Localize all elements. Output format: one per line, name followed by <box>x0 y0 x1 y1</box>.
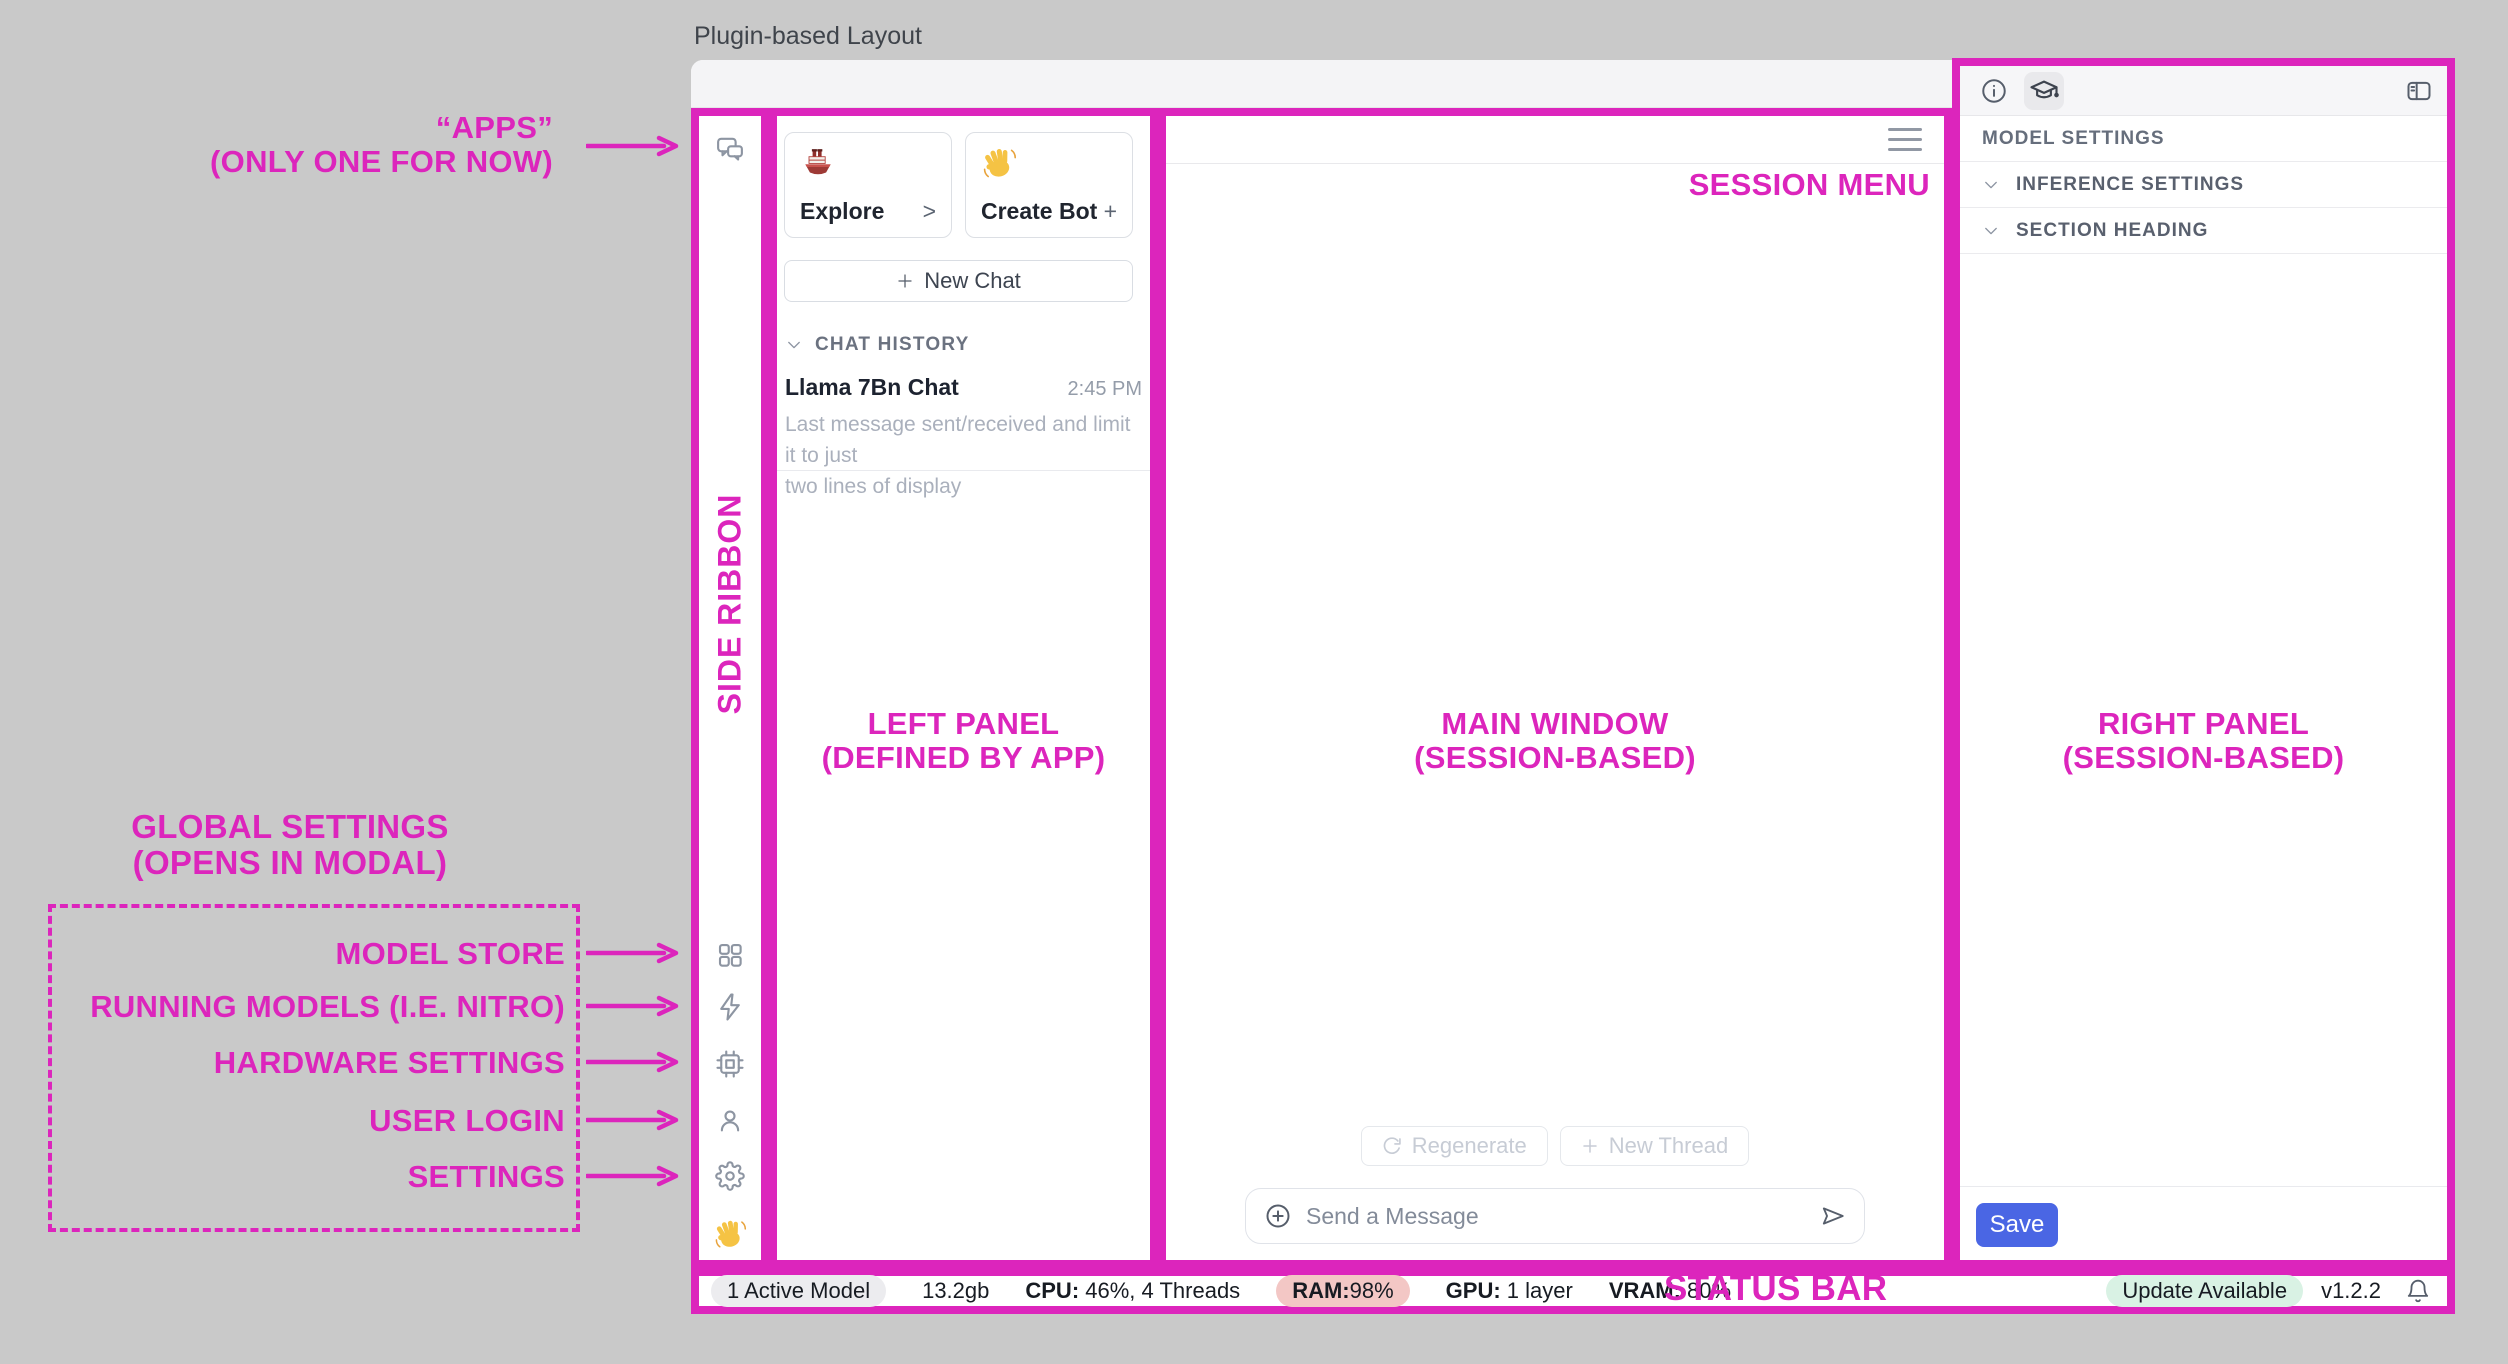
status-right-group: Update Available v1.2.2 <box>2106 1275 2431 1307</box>
session-menu-button[interactable] <box>1888 128 1922 151</box>
send-icon[interactable] <box>1820 1203 1846 1229</box>
right-panel: MODEL SETTINGS INFERENCE SETTINGS SECTIO… <box>1952 58 2455 1268</box>
app-cards: Explore > <box>784 132 1133 238</box>
inference-settings-row[interactable]: INFERENCE SETTINGS <box>1960 162 2447 208</box>
chat-item-preview-line1: Last message sent/received and limit it … <box>785 409 1142 471</box>
annotation-arrow-model-store <box>586 942 680 964</box>
new-chat-button[interactable]: New Chat <box>784 260 1133 302</box>
plus-icon <box>1581 1137 1599 1155</box>
annotation-arrow-hardware <box>586 1051 680 1073</box>
chat-history-section-header[interactable]: CHAT HISTORY <box>785 334 969 356</box>
section-heading-row[interactable]: SECTION HEADING <box>1960 208 2447 254</box>
ram-status-badge: RAM: 98% <box>1276 1275 1409 1307</box>
annotation-hardware-settings: HARDWARE SETTINGS <box>60 1046 565 1080</box>
hamburger-icon <box>1888 128 1922 131</box>
explore-card-chevron: > <box>923 198 936 225</box>
update-available-badge[interactable]: Update Available <box>2106 1275 2303 1307</box>
ribbon-wave-button[interactable] <box>713 1217 747 1251</box>
annotation-main-window: MAIN WINDOW (SESSION-BASED) <box>1158 707 1952 775</box>
right-panel-header <box>1960 66 2447 116</box>
active-model-badge[interactable]: 1 Active Model <box>711 1275 886 1307</box>
annotation-apps: “APPS” (ONLY ONE FOR NOW) <box>150 111 553 179</box>
main-window: Regenerate New Thread <box>1158 108 1952 1268</box>
model-settings-tab-button[interactable] <box>2024 72 2064 110</box>
model-size: 13.2gb <box>922 1278 989 1304</box>
gear-icon <box>715 1161 745 1191</box>
info-tab-button[interactable] <box>1974 72 2014 110</box>
annotation-global-settings: GLOBAL SETTINGS (OPENS IN MODAL) <box>95 809 485 881</box>
status-bar: 1 Active Model 13.2gb CPU: 46%, 4 Thread… <box>691 1268 2455 1314</box>
ship-icon <box>800 145 836 181</box>
annotation-running-models: RUNNING MODELS (I.E. NITRO) <box>60 990 565 1024</box>
graduation-cap-icon <box>2029 76 2059 106</box>
wave-hand-icon <box>981 145 1017 181</box>
grid-icon <box>715 940 745 970</box>
user-icon <box>715 1106 745 1136</box>
annotation-status-bar: STATUS BAR <box>1664 1272 1887 1306</box>
zap-icon <box>715 992 745 1022</box>
annotation-model-store: MODEL STORE <box>60 937 565 971</box>
info-icon <box>1980 77 2008 105</box>
cpu-icon <box>715 1049 745 1079</box>
panel-toggle-icon <box>2405 77 2433 105</box>
annotation-arrow-running-models <box>586 995 680 1017</box>
annotation-arrow-apps <box>586 135 680 157</box>
annotation-user-login: USER LOGIN <box>60 1104 565 1138</box>
annotation-arrow-settings <box>586 1165 680 1187</box>
inference-settings-label: INFERENCE SETTINGS <box>2016 174 2244 196</box>
chat-item-title: Llama 7Bn Chat <box>785 374 959 401</box>
bell-icon[interactable] <box>2405 1278 2431 1304</box>
chat-item-divider <box>777 470 1150 471</box>
chevron-down-icon <box>785 336 803 354</box>
thread-actions: Regenerate New Thread <box>1166 1126 1944 1166</box>
cpu-status: CPU: 46%, 4 Threads <box>1025 1278 1240 1304</box>
create-bot-card-plus: + <box>1104 198 1117 225</box>
section-heading-label: SECTION HEADING <box>2016 220 2208 242</box>
create-bot-card[interactable]: Create Bot + <box>965 132 1133 238</box>
annotation-settings: SETTINGS <box>60 1160 565 1194</box>
regenerate-label: Regenerate <box>1412 1133 1527 1159</box>
left-panel: Explore > <box>769 108 1158 1268</box>
ribbon-running-models-button[interactable] <box>713 990 747 1024</box>
wave-hand-icon <box>713 1217 747 1251</box>
annotation-arrow-user-login <box>586 1109 680 1131</box>
ribbon-apps-button[interactable] <box>713 133 747 167</box>
chevron-down-icon <box>1982 176 2000 194</box>
new-chat-label: New Chat <box>924 268 1021 294</box>
app-version: v1.2.2 <box>2321 1278 2381 1304</box>
ribbon-model-store-button[interactable] <box>713 938 747 972</box>
design-canvas: Plugin-based Layout <box>0 0 2508 1364</box>
save-button[interactable]: Save <box>1976 1203 2058 1247</box>
refresh-icon <box>1382 1136 1402 1156</box>
message-bar <box>1245 1188 1865 1244</box>
create-bot-card-label: Create Bot <box>981 198 1097 225</box>
plus-circle-icon[interactable] <box>1264 1202 1292 1230</box>
ribbon-hardware-button[interactable] <box>713 1047 747 1081</box>
explore-card[interactable]: Explore > <box>784 132 952 238</box>
session-header <box>1166 116 1944 164</box>
window-titlebar <box>691 60 1952 108</box>
chat-item-preview-line2: two lines of display <box>785 471 1142 502</box>
status-left-group: 1 Active Model 13.2gb CPU: 46%, 4 Thread… <box>711 1275 1731 1307</box>
right-panel-toggle-button[interactable] <box>2405 77 2433 105</box>
model-settings-header-row: MODEL SETTINGS <box>1960 116 2447 162</box>
regenerate-button[interactable]: Regenerate <box>1361 1126 1548 1166</box>
annotation-right-panel: RIGHT PANEL (SESSION-BASED) <box>1952 707 2455 775</box>
annotation-side-ribbon: SIDE RIBBON <box>712 494 749 715</box>
new-thread-label: New Thread <box>1609 1133 1728 1159</box>
new-thread-button[interactable]: New Thread <box>1560 1126 1749 1166</box>
chat-icon <box>715 135 745 165</box>
footer-divider <box>1960 1186 2447 1187</box>
chat-history-label: CHAT HISTORY <box>815 334 969 356</box>
annotation-left-panel: LEFT PANEL (DEFINED BY APP) <box>769 707 1158 775</box>
ribbon-settings-button[interactable] <box>713 1159 747 1193</box>
chat-item-time: 2:45 PM <box>1068 378 1142 401</box>
annotation-session-menu: SESSION MENU <box>1560 168 1930 202</box>
message-input[interactable] <box>1306 1203 1806 1230</box>
chat-list-item[interactable]: Llama 7Bn Chat 2:45 PM Last message sent… <box>785 374 1142 502</box>
model-settings-label: MODEL SETTINGS <box>1982 128 2165 150</box>
chevron-down-icon <box>1982 222 2000 240</box>
ribbon-user-login-button[interactable] <box>713 1104 747 1138</box>
plus-icon <box>896 272 914 290</box>
explore-card-label: Explore <box>800 198 884 225</box>
page-title: Plugin-based Layout <box>694 22 922 51</box>
gpu-status: GPU: 1 layer <box>1446 1278 1573 1304</box>
